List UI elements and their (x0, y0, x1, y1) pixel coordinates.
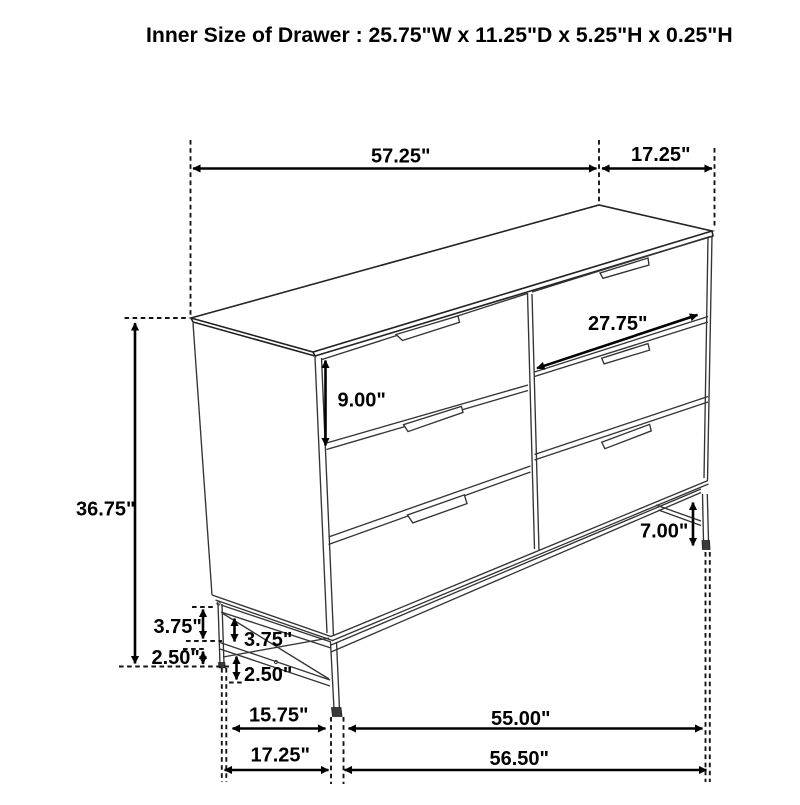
svg-text:7.00": 7.00" (640, 521, 688, 543)
svg-text:15.75": 15.75" (249, 705, 309, 727)
svg-text:56.50": 56.50" (490, 748, 550, 770)
svg-text:17.25": 17.25" (631, 144, 691, 166)
svg-text:Inner Size of Drawer : 25.75"W: Inner Size of Drawer : 25.75"W x 11.25"D… (146, 24, 733, 47)
svg-text:9.00": 9.00" (338, 390, 386, 412)
svg-text:36.75": 36.75" (76, 499, 136, 521)
svg-text:2.50": 2.50" (152, 647, 200, 669)
svg-text:55.00": 55.00" (491, 708, 551, 730)
svg-text:57.25": 57.25" (371, 146, 431, 168)
svg-text:2.50": 2.50" (244, 664, 292, 686)
svg-text:3.75": 3.75" (154, 616, 202, 638)
svg-text:27.75": 27.75" (588, 313, 648, 335)
svg-text:17.25": 17.25" (251, 745, 311, 767)
svg-text:3.75": 3.75" (244, 629, 292, 651)
